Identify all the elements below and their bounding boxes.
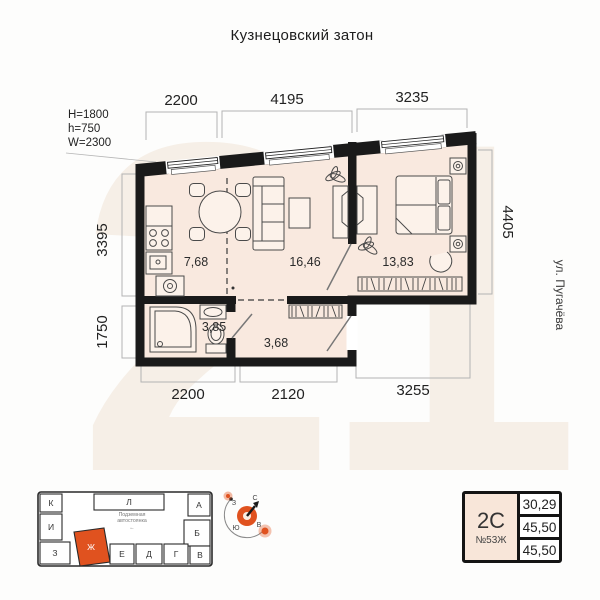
tv-bedroom	[357, 193, 363, 225]
fridge	[146, 206, 172, 226]
dining-table	[199, 191, 241, 233]
tv-living	[342, 191, 348, 227]
area-kitchen: 7,68	[184, 255, 208, 269]
wall-kitchen-bathroom	[140, 296, 236, 304]
dim-top-1: 2200	[164, 92, 197, 109]
compass-north: С	[252, 495, 257, 502]
section-g: Г	[174, 549, 179, 559]
dim-left-1: 3395	[94, 223, 111, 256]
location-title: Кузнецовский затон	[231, 27, 374, 44]
section-k: К	[49, 498, 54, 508]
section-z: З	[52, 548, 57, 558]
dim-right-1: 4405	[499, 205, 516, 238]
section-b: Б	[194, 528, 200, 538]
dim-top-2: 4195	[270, 91, 303, 108]
area-hallway: 3,68	[264, 336, 288, 350]
section-v: В	[197, 550, 203, 560]
compass-east: В	[257, 522, 262, 529]
section-a: А	[196, 500, 202, 510]
compass-west: З	[232, 500, 236, 507]
unit-area-value: 30,29	[520, 494, 559, 517]
street-label: ул. Пугачёва	[553, 260, 567, 331]
spec-h: h=750	[68, 123, 100, 135]
chair	[190, 184, 205, 197]
section-d: Д	[146, 549, 152, 559]
unit-areas: 30,29 45,50 45,50	[520, 494, 559, 560]
dim-top-3: 3235	[395, 89, 428, 106]
dim-bottom-3: 3255	[396, 382, 429, 399]
section-e: Е	[119, 549, 125, 559]
unit-type-cell: 2С №53Ж	[465, 494, 520, 560]
bathtub	[150, 307, 196, 352]
unit-area-value: 45,50	[520, 517, 559, 540]
unit-info-card: 2С №53Ж 30,29 45,50 45,50	[462, 491, 562, 563]
dim-bottom-2: 2120	[271, 386, 304, 403]
unit-type: 2С	[477, 508, 505, 534]
parking-label-2: автостоянка	[117, 518, 147, 524]
spec-H: H=1800	[68, 109, 109, 121]
spec-W: W=2300	[68, 137, 111, 149]
nightstand	[450, 158, 466, 174]
chair	[236, 184, 251, 197]
wall-living-bedroom	[348, 142, 357, 244]
chair	[236, 228, 251, 241]
unit-area-value: 45,50	[520, 540, 559, 560]
dim-bottom-1: 2200	[171, 386, 204, 403]
pillow	[438, 206, 450, 230]
site-plan: К Л А И Б З Ж Е Д Г В Подземная автостоя…	[38, 492, 212, 566]
dim-left-2: 1750	[94, 315, 111, 348]
wall-bathroom-hallway-bottom	[227, 338, 236, 362]
pillow	[438, 180, 450, 204]
sofa	[253, 177, 284, 250]
chair	[190, 228, 205, 241]
floorplan-page: 21 Кузнецовский затон H=1800 h=750 W=230…	[0, 0, 600, 600]
coffee-table	[289, 198, 310, 228]
parking-arrow: ←	[129, 525, 134, 531]
wall-living-hallway	[287, 296, 352, 304]
area-bedroom: 13,83	[382, 255, 413, 269]
nightstand	[450, 236, 466, 252]
section-l: Л	[126, 497, 132, 507]
area-bathroom: 3,85	[202, 320, 226, 334]
unit-number: №53Ж	[475, 535, 506, 546]
area-living: 16,46	[289, 255, 320, 269]
wall-bathroom-hallway-top	[227, 300, 236, 312]
stove	[146, 226, 172, 250]
compass-south: Ю	[232, 525, 239, 532]
section-zh: Ж	[87, 542, 95, 552]
toilet-tank	[206, 344, 226, 353]
section-i: И	[48, 522, 54, 532]
